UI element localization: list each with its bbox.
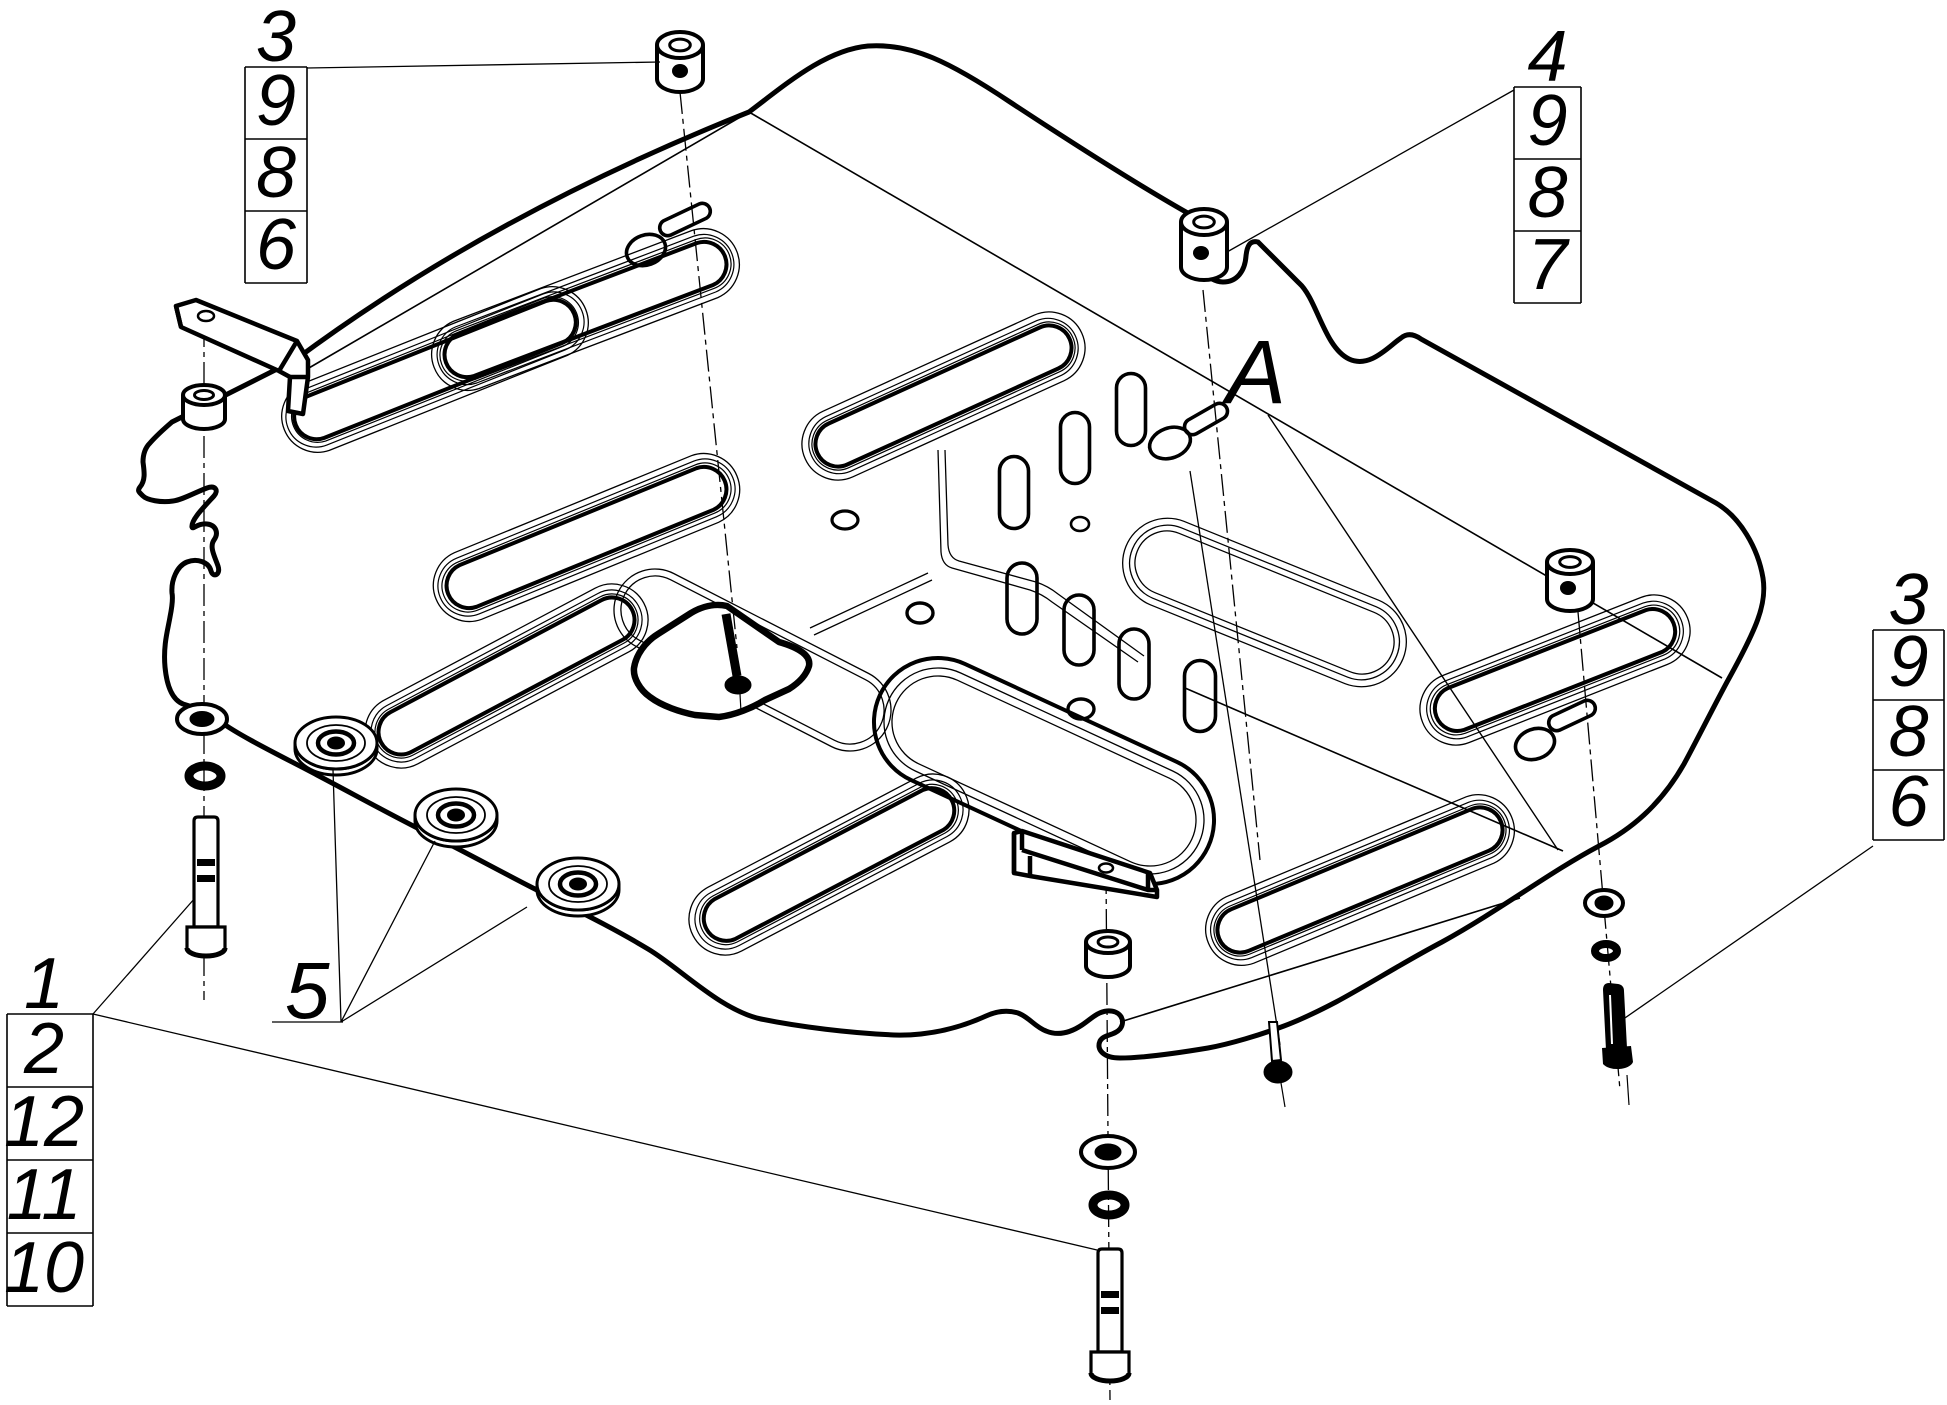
svg-text:12: 12 [4, 1082, 84, 1162]
svg-text:8: 8 [1527, 153, 1567, 233]
svg-text:9: 9 [1527, 81, 1567, 161]
svg-text:9: 9 [1888, 622, 1928, 702]
svg-text:8: 8 [256, 133, 296, 213]
svg-text:8: 8 [1888, 692, 1928, 772]
svg-text:7: 7 [1527, 225, 1570, 305]
svg-text:6: 6 [256, 205, 297, 285]
svg-text:9: 9 [256, 61, 296, 141]
svg-text:A: A [1221, 323, 1286, 423]
svg-text:11: 11 [7, 1155, 82, 1235]
svg-text:2: 2 [23, 1009, 64, 1089]
svg-text:10: 10 [4, 1228, 84, 1308]
svg-text:6: 6 [1888, 762, 1929, 842]
